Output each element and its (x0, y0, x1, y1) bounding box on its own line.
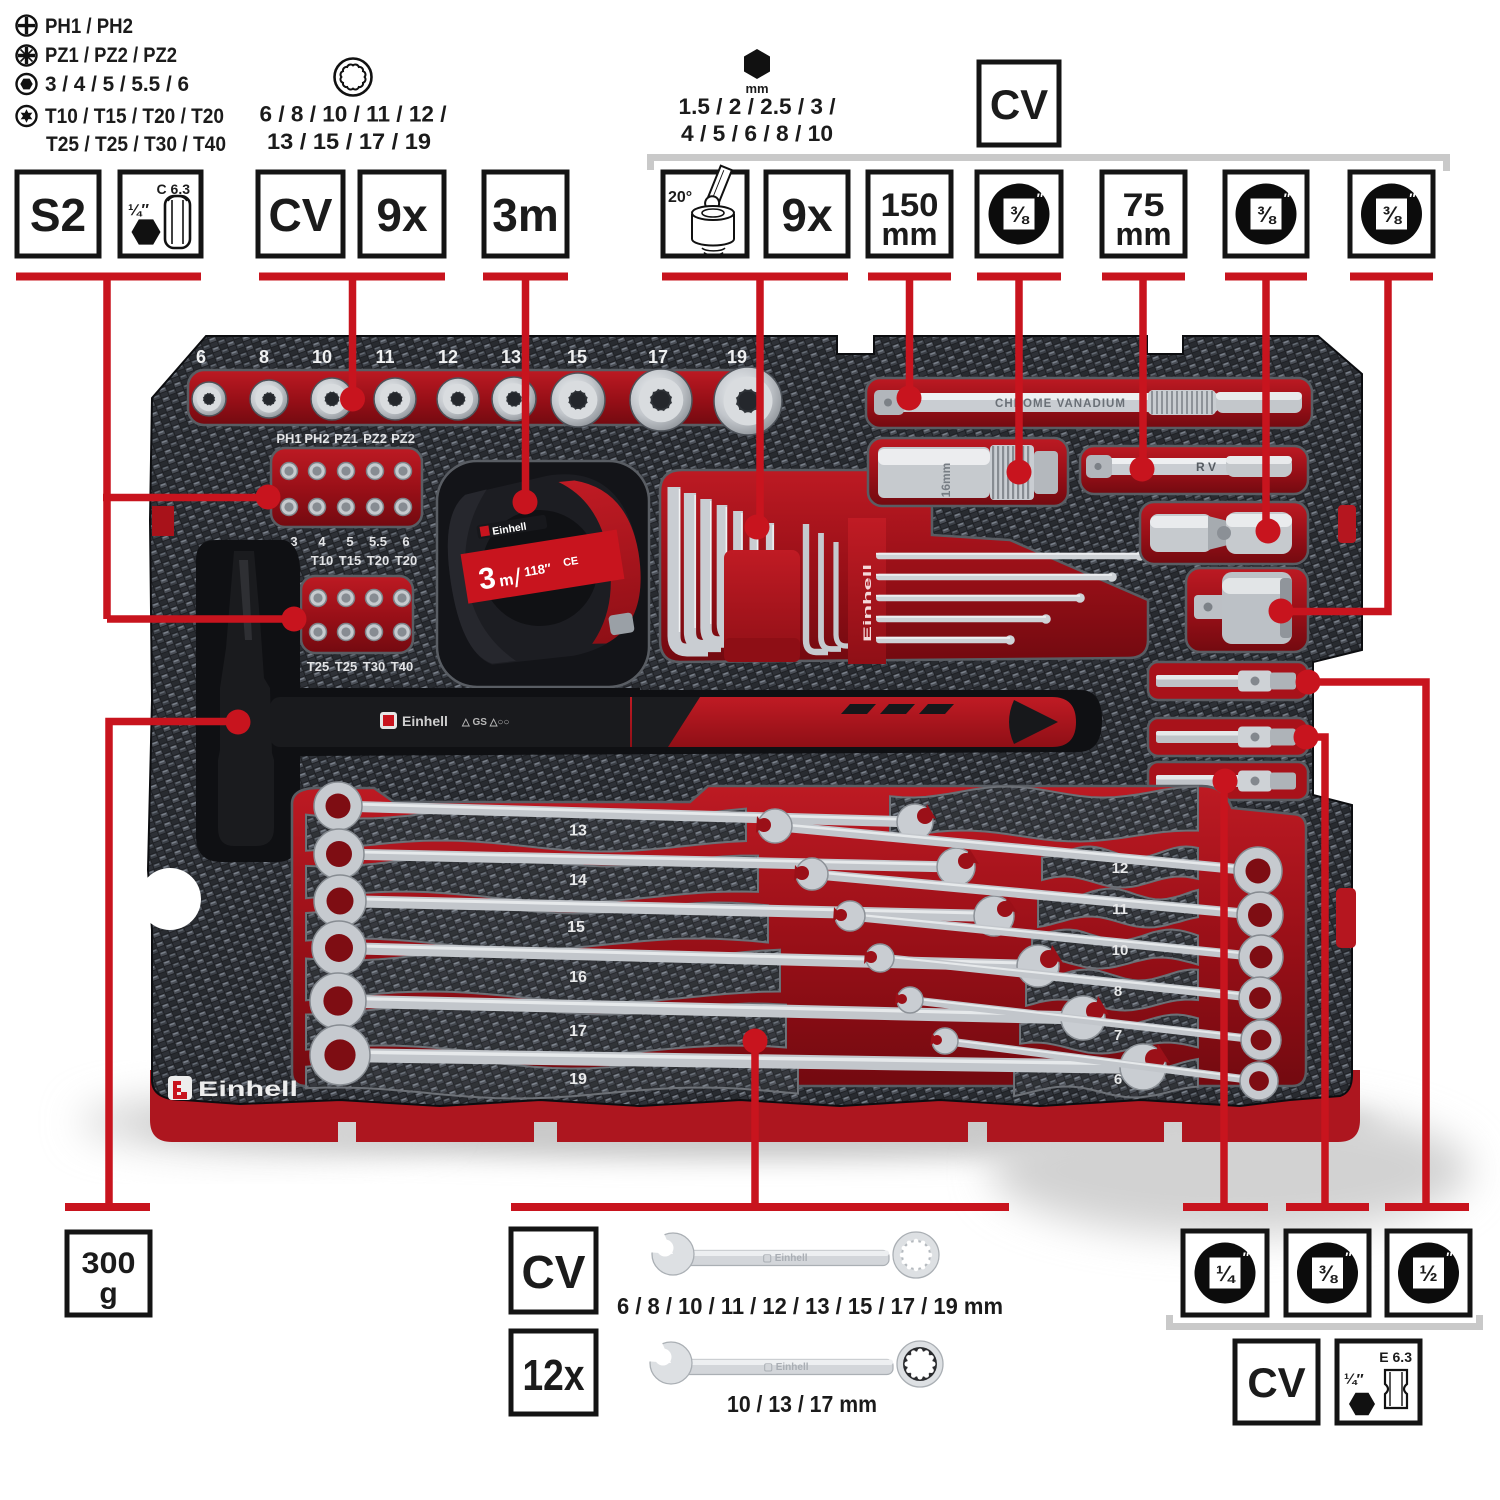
svg-text:E 6.3: E 6.3 (1379, 1349, 1412, 1365)
svg-text:5.5: 5.5 (369, 534, 387, 549)
svg-text:PZ2: PZ2 (391, 431, 415, 446)
svg-text:T25: T25 (335, 659, 357, 674)
svg-text:¼″: ¼″ (1344, 1371, 1364, 1388)
svg-text:CV: CV (1247, 1359, 1305, 1406)
svg-text:T10 / T15 / T20 / T20: T10 / T15 / T20 / T20 (45, 105, 224, 128)
svg-text:CV: CV (269, 189, 333, 241)
svg-text:13: 13 (569, 823, 587, 840)
svg-text:g: g (99, 1277, 117, 1310)
svg-text:20°: 20° (668, 189, 692, 206)
svg-text:3m: 3m (492, 189, 558, 241)
svg-text:⅜: ⅜ (1318, 1261, 1338, 1286)
svg-text:PZ1: PZ1 (334, 431, 358, 446)
svg-text:Einhell: Einhell (198, 1078, 298, 1101)
svg-text:6 / 8 / 10 / 11 / 12 / 13 / 15: 6 / 8 / 10 / 11 / 12 / 13 / 15 / 17 / 19… (617, 1293, 1003, 1319)
svg-text:T20: T20 (395, 553, 417, 568)
svg-text:CHROME VANADIUM: CHROME VANADIUM (995, 398, 1125, 410)
svg-text:8: 8 (1114, 983, 1122, 1000)
svg-text:T25: T25 (307, 659, 329, 674)
svg-text:10 / 13 / 17 mm: 10 / 13 / 17 mm (727, 1391, 877, 1417)
svg-text:T10: T10 (311, 553, 333, 568)
svg-text:Einhell: Einhell (862, 564, 874, 642)
svg-text:mm: mm (1116, 216, 1172, 252)
svg-text:″: ″ (1409, 190, 1416, 206)
svg-text:19: 19 (569, 1071, 587, 1088)
svg-text:15: 15 (567, 347, 587, 367)
svg-text:PH2: PH2 (304, 431, 329, 446)
svg-text:8: 8 (259, 347, 269, 367)
svg-text:11: 11 (1112, 901, 1128, 918)
svg-text:12: 12 (1112, 860, 1129, 877)
svg-text:12: 12 (438, 347, 458, 367)
svg-text:13 / 15 / 17 / 19: 13 / 15 / 17 / 19 (267, 129, 431, 154)
svg-text:″: ″ (1345, 1249, 1352, 1265)
svg-text:T40: T40 (391, 659, 413, 674)
svg-text:4 / 5 / 6 / 8 / 10: 4 / 5 / 6 / 8 / 10 (681, 121, 833, 146)
svg-text:9x: 9x (376, 189, 428, 241)
svg-text:″: ″ (1446, 1249, 1453, 1265)
svg-text:T30: T30 (363, 659, 385, 674)
svg-text:11: 11 (375, 347, 394, 367)
svg-text:6 / 8 / 10 / 11 / 12 /: 6 / 8 / 10 / 11 / 12 / (260, 102, 447, 127)
svg-text:CV: CV (522, 1246, 586, 1298)
svg-text:⅜: ⅜ (1010, 202, 1030, 227)
svg-text:3 / 4 / 5 / 5.5 / 6: 3 / 4 / 5 / 5.5 / 6 (45, 73, 189, 96)
svg-text:″: ″ (1037, 190, 1044, 206)
svg-text:⅜: ⅜ (1382, 202, 1402, 227)
svg-text:″: ″ (1284, 190, 1291, 206)
svg-text:▢ Einhell: ▢ Einhell (762, 1253, 807, 1264)
svg-text:12x: 12x (523, 1351, 585, 1400)
svg-text:S2: S2 (30, 189, 86, 241)
svg-text:13: 13 (501, 347, 521, 367)
svg-text:6: 6 (1114, 1071, 1122, 1088)
svg-text:⅜: ⅜ (1257, 202, 1277, 227)
svg-text:PZ2: PZ2 (363, 431, 387, 446)
svg-text:CV: CV (990, 81, 1048, 128)
svg-text:△ GS △○○: △ GS △○○ (461, 717, 509, 728)
svg-text:1.5 / 2 / 2.5 / 3 /: 1.5 / 2 / 2.5 / 3 / (679, 94, 836, 119)
svg-text:5: 5 (346, 534, 353, 549)
svg-text:mm: mm (882, 216, 938, 252)
svg-text:¼″: ¼″ (128, 202, 149, 219)
svg-text:R V: R V (1196, 460, 1216, 474)
svg-text:½: ½ (1419, 1261, 1437, 1286)
svg-text:PH1 / PH2: PH1 / PH2 (45, 15, 133, 38)
svg-text:PZ1 / PZ2 / PZ2: PZ1 / PZ2 / PZ2 (45, 44, 177, 67)
svg-text:T25 / T25 / T30 / T40: T25 / T25 / T30 / T40 (46, 133, 226, 156)
svg-text:PH1: PH1 (276, 431, 301, 446)
svg-text:10: 10 (312, 347, 332, 367)
svg-text:T15: T15 (339, 553, 361, 568)
svg-text:″: ″ (1243, 1249, 1250, 1265)
svg-text:▢ Einhell: ▢ Einhell (763, 1362, 808, 1373)
svg-text:14: 14 (569, 872, 587, 889)
svg-text:6: 6 (196, 347, 206, 367)
svg-text:15: 15 (567, 919, 585, 936)
svg-text:C 6.3: C 6.3 (157, 181, 191, 197)
svg-text:300: 300 (82, 1247, 136, 1280)
svg-text:7: 7 (1114, 1027, 1122, 1044)
svg-text:17: 17 (648, 347, 668, 367)
svg-text:19: 19 (727, 347, 747, 367)
svg-text:4: 4 (318, 534, 326, 549)
svg-text:CE: CE (562, 555, 579, 569)
svg-text:T20: T20 (367, 553, 389, 568)
svg-text:6: 6 (402, 534, 409, 549)
svg-text:Einhell: Einhell (402, 713, 448, 729)
svg-text:9x: 9x (781, 189, 833, 241)
svg-text:10: 10 (1112, 942, 1129, 959)
svg-text:¼: ¼ (1216, 1261, 1236, 1286)
svg-text:16mm: 16mm (939, 463, 953, 498)
svg-text:17: 17 (569, 1023, 587, 1040)
svg-text:m: m (498, 571, 515, 590)
svg-text:16: 16 (569, 969, 587, 986)
